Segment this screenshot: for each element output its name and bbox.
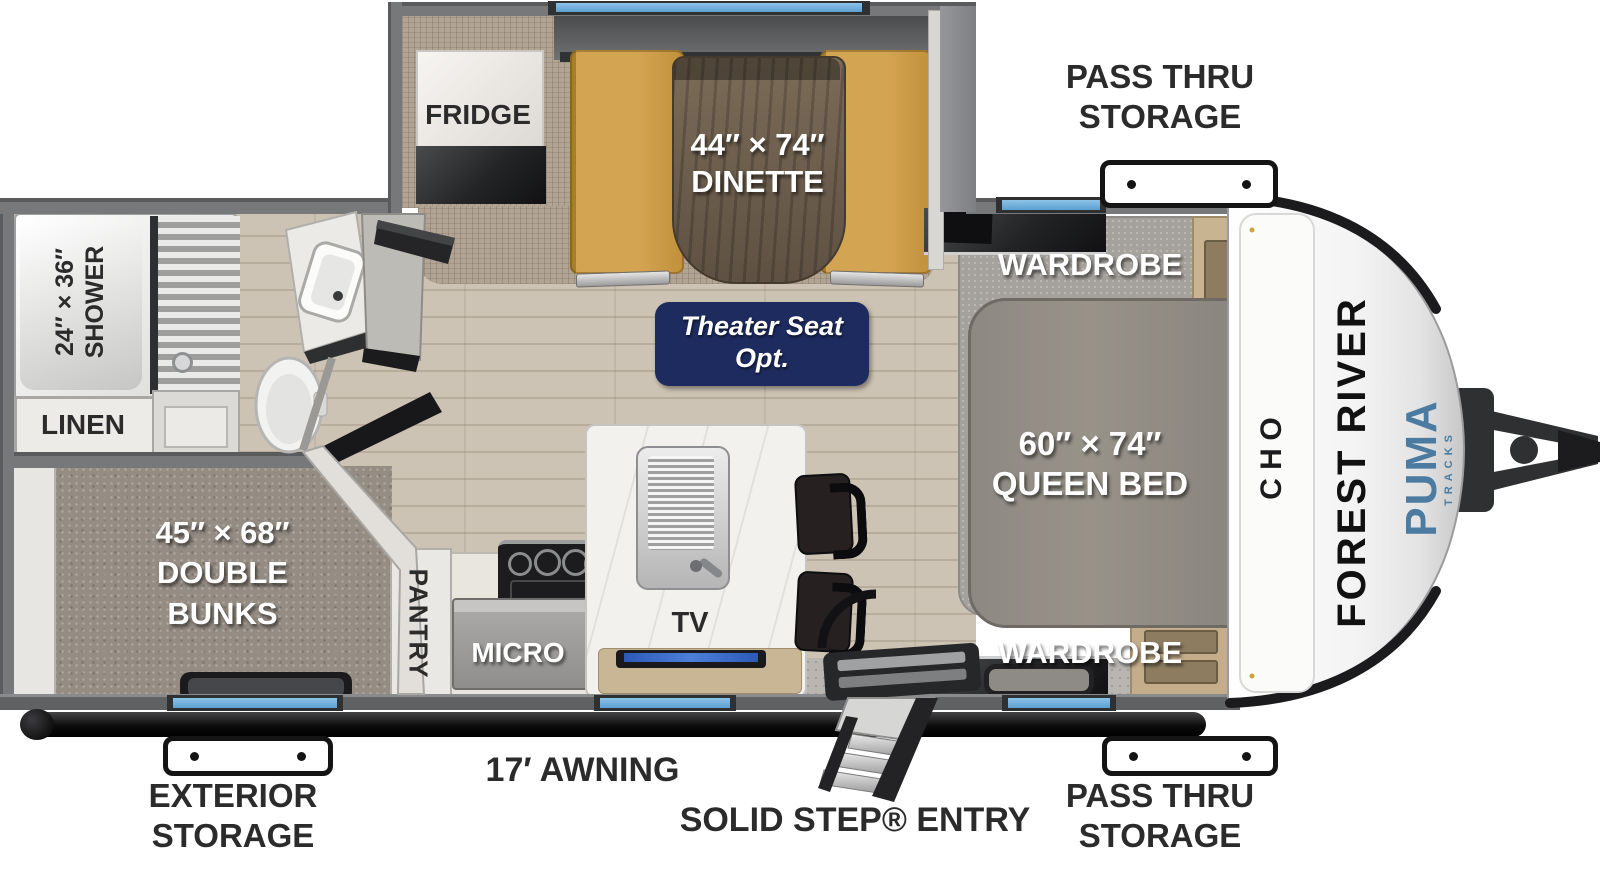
- label-wardrobe-top: WARDROBE: [980, 246, 1200, 283]
- label-entry: SOLID STEP® ENTRY: [660, 800, 1050, 841]
- label-fridge: FRIDGE: [416, 98, 540, 132]
- entry-steps-outside: [818, 698, 938, 802]
- label-wardrobe-bottom: WARDROBE: [980, 634, 1200, 671]
- label-linen: LINEN: [14, 408, 152, 442]
- label-exterior-storage: EXTERIOR STORAGE: [108, 776, 358, 855]
- label-tv: TV: [660, 606, 720, 641]
- rv-floorplan: FRIDGE 44″ × 74″ DINETTE WARDROBE 60″ × …: [0, 0, 1600, 883]
- label-shower: 24″ × 36″ SHOWER: [50, 227, 110, 377]
- label-dinette: 44″ × 74″ DINETTE: [650, 126, 865, 200]
- label-pass-thru-top: PASS THRU STORAGE: [1035, 57, 1285, 136]
- hitch: [1450, 388, 1600, 512]
- label-queen-bed: 60″ × 74″ QUEEN BED: [975, 424, 1205, 503]
- entry-step-inside: [823, 642, 982, 701]
- label-pantry: PANTRY: [402, 549, 433, 699]
- label-pass-thru-bottom: PASS THRU STORAGE: [1035, 776, 1285, 855]
- entry-door-arc: [822, 594, 876, 648]
- label-bunks: 45″ × 68″ DOUBLE BUNKS: [95, 513, 350, 634]
- pass-thru-door-top: [1100, 160, 1278, 208]
- label-awning: 17′ AWNING: [430, 750, 735, 791]
- brand-forest-river: FOREST RIVER: [1330, 262, 1374, 662]
- label-theater-opt: Theater Seat Opt.: [655, 310, 869, 375]
- brand-puma-text: PUMA: [1400, 378, 1444, 558]
- exterior-storage-door: [163, 736, 333, 776]
- label-micro: MICRO: [452, 636, 584, 670]
- pass-thru-door-bottom: [1102, 736, 1278, 776]
- brand-puma: PUMA TRACKS: [1400, 378, 1464, 558]
- ohc-letter: C: [1255, 469, 1285, 509]
- ohc-text: O H C: [1250, 414, 1290, 504]
